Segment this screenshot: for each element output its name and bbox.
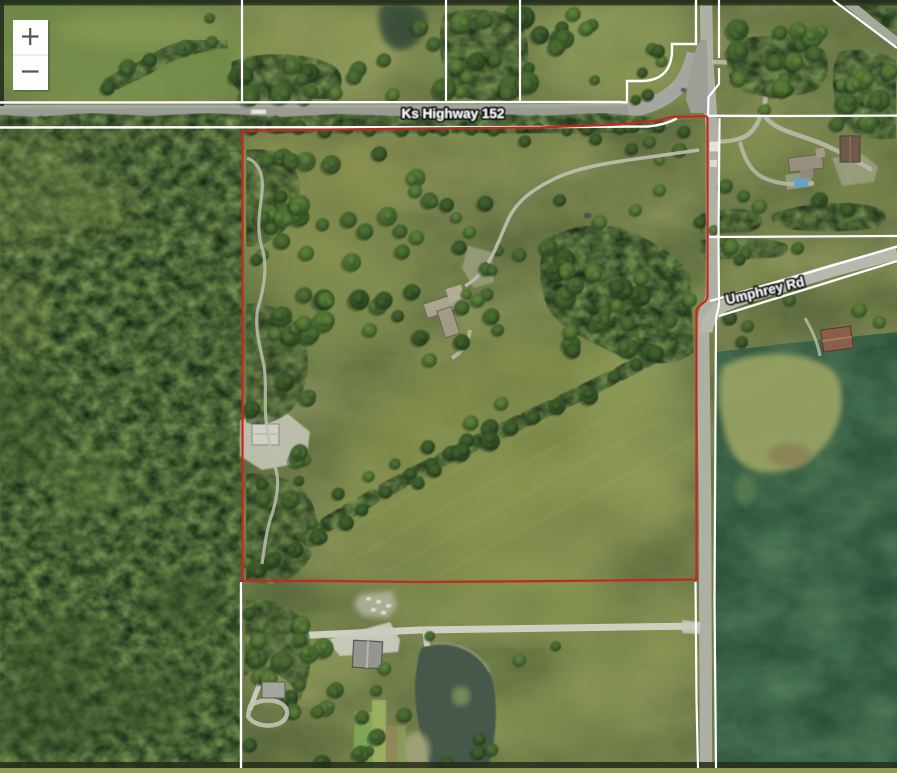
svg-text:Ks Highway 152: Ks Highway 152 (402, 106, 505, 121)
